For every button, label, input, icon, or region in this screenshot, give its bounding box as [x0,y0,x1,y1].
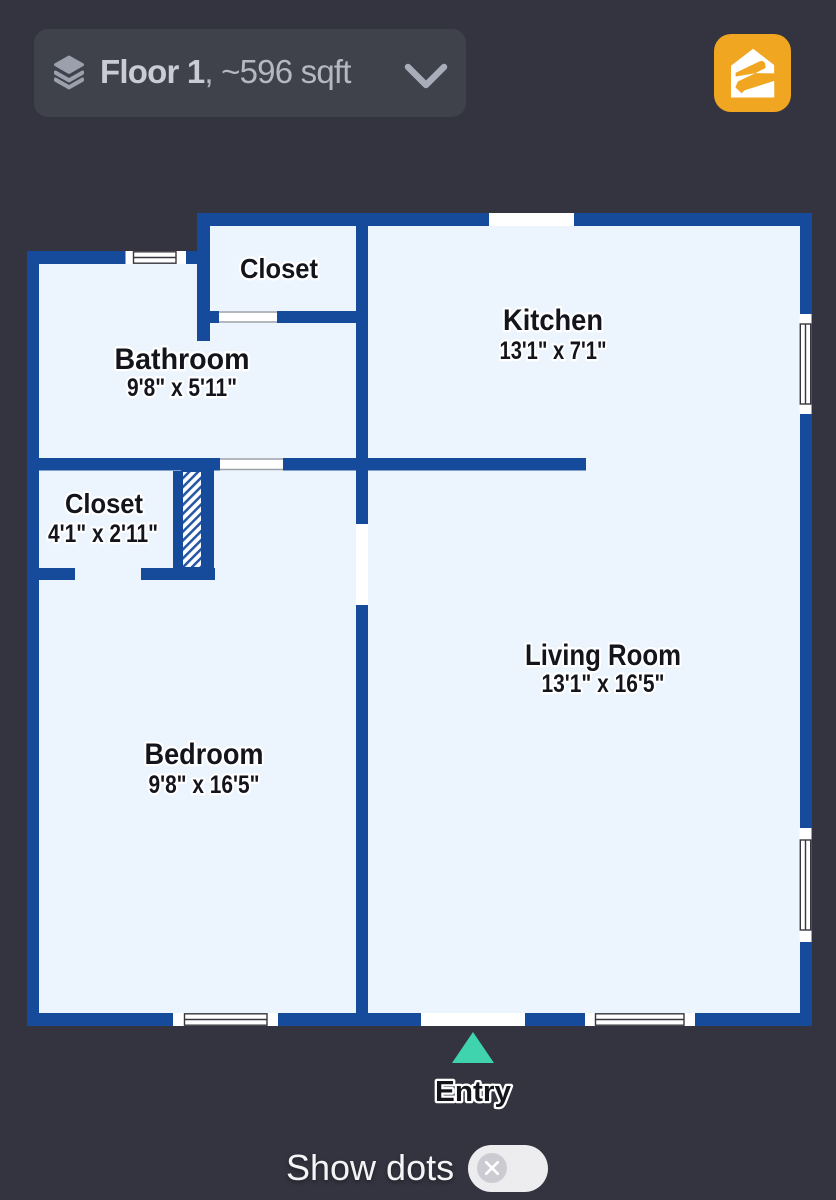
svg-text:13'1" x 16'5": 13'1" x 16'5" [542,670,665,698]
svg-text:Closet: Closet [240,253,318,284]
svg-text:Bathroom: Bathroom [115,343,250,376]
svg-text:Closet: Closet [65,488,143,519]
svg-text:13'1" x 7'1": 13'1" x 7'1" [500,337,607,365]
svg-text:Entry: Entry [435,1076,511,1108]
svg-text:Living Room: Living Room [525,639,681,672]
svg-text:Kitchen: Kitchen [503,304,603,337]
svg-text:9'8" x 5'11": 9'8" x 5'11" [127,374,237,402]
svg-text:9'8" x 16'5": 9'8" x 16'5" [149,771,260,799]
svg-text:4'1" x 2'11": 4'1" x 2'11" [48,520,158,548]
svg-text:Bedroom: Bedroom [145,738,264,771]
